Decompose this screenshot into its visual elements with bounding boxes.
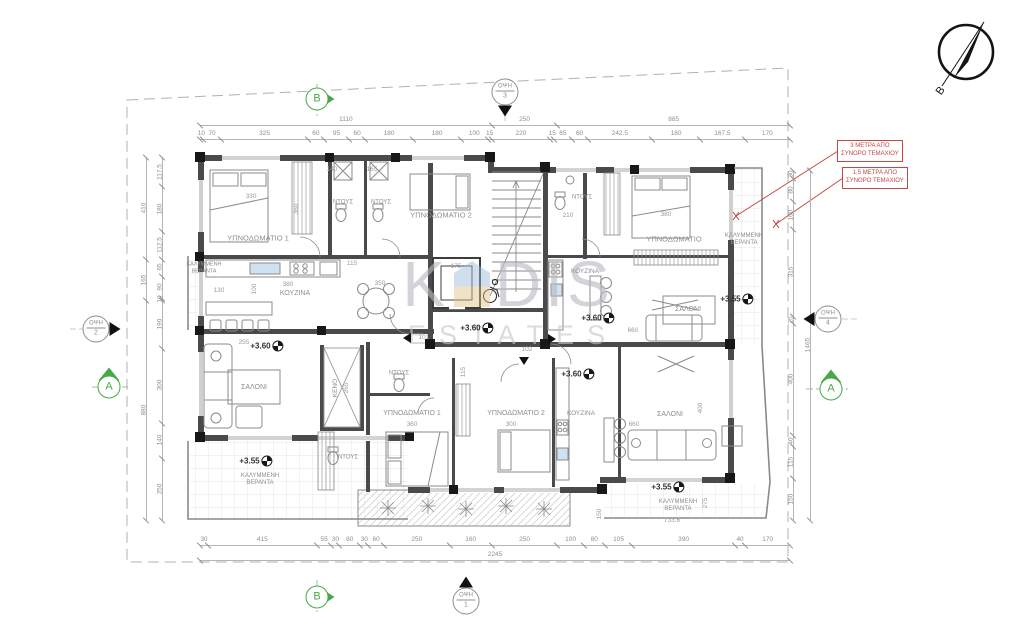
dimension-value: 117.5 [157,164,164,180]
dimension-value: 1465 [805,338,812,352]
dim-label: 130 [214,287,225,295]
red-note: 3 ΜΕΤΡΑ ΑΠΟΣΥΝΟΡΟ ΤΕΜΑΧΙΟΥ [837,140,903,162]
section-marker-letter: A [820,378,843,401]
dimension-value: 167.5 [714,130,730,137]
dimension-value: 250 [157,483,164,494]
elevation-symbol-icon [604,313,615,324]
dimension-value: 55 [321,536,328,543]
elevation-label: +3.60 [250,341,283,352]
dimension-value: 165 [141,274,148,285]
dim-label: 175 [451,263,462,271]
dim-label: 140 [327,166,338,174]
stairs [490,172,543,296]
dim-label: 330 [246,193,257,201]
void-shaft [324,348,360,427]
dimension-value: 180 [384,130,395,137]
dimension-value: 400 [788,374,795,385]
dim-label: 360 [407,421,418,429]
view-marker-arrow-icon [459,577,473,588]
dimension-baseline [200,560,790,561]
dimension-value: 220 [516,130,527,137]
compass-north-letter: B [934,84,948,97]
room-label: ΥΠΝΟΔΩΜΑΤΙΟ 2 [410,211,472,220]
dim-label: 101 [419,334,430,342]
view-marker: ΟΨΗ2 [83,316,110,343]
dimension-value: 80 [346,536,353,543]
view-marker-text [496,91,515,92]
red-note-line: 3 ΜΕΤΡΑ ΑΠΟ [841,143,899,151]
dimension-value: 95 [333,130,340,137]
dimension-value: 80 [788,186,795,193]
elevation-label: +3.60 [581,313,614,324]
dimension-value: 160 [465,536,476,543]
dimension-value: 325 [259,130,270,137]
dimension-line-right_inner: 30801003152540040115150 [787,170,799,520]
dim-label: 115 [460,367,468,377]
dim-label: 275 [702,498,710,509]
dimension-value: 250 [519,536,530,543]
section-marker-b: B [306,88,329,111]
dim-label: 150 [596,509,604,520]
view-marker-text: ΟΨΗ [816,311,841,317]
room-label: ΝΤΟΥΣ [333,199,353,206]
dim-label: 660 [629,421,640,429]
dimension-baseline [793,170,794,520]
elevation-value: +3.60 [581,314,601,323]
section-marker-letter: B [306,88,329,111]
red-note-line: ΣΥΝΟΡΟ ΤΕΜΑΧΙΟΥ [846,178,904,186]
elevation-value: +3.55 [720,295,740,304]
dimension-line-left_inner: 117.5180112.5659010190300140250 [156,157,168,520]
view-marker-text [87,328,106,329]
dimension-line-top_outer: 1110250885 [200,119,790,131]
dimension-value: 170 [762,536,773,543]
room-label: ΥΠΝΟΔΩΜΑΤΙΟ 1 [227,234,289,243]
red-note: 1,5 ΜΕΤΡΑ ΑΠΟΣΥΝΟΡΟ ΤΕΜΑΧΙΟΥ [842,167,908,189]
dimension-value: 100 [565,536,576,543]
room-label: ΚΕΝΟ [332,379,340,397]
dimension-value: 390 [678,536,689,543]
view-marker-text [819,318,838,319]
dimension-value: 80 [591,536,598,543]
dim-label: 350 [375,280,386,288]
elevation-label: +3.55 [239,456,272,467]
dimension-value: 65 [559,130,566,137]
elevation-symbol-icon [262,456,273,467]
dimension-value: 30 [361,536,368,543]
view-marker-text: ΟΨΗ [493,84,518,90]
compass-icon: B [934,22,993,97]
view-marker-text: 3 [493,93,518,100]
room-label: ΝΤΟΥΣ [572,194,592,201]
room-label: ΚΟΥΖΙΝΑ [567,410,595,418]
dimension-value: 250 [411,536,422,543]
dim-label: 102 [522,346,533,354]
dim-label: 265 [343,383,351,394]
dimension-baseline [200,545,790,546]
dimension-value: 70 [208,130,215,137]
view-marker-arrow-icon [804,312,815,326]
dimension-value: 100 [788,209,795,220]
elevation-value: +3.55 [651,483,671,492]
dimension-value: 1110 [339,116,353,123]
dimension-line-top_inner: 107032560956018018010015220156560242.518… [200,133,790,145]
room-label: ΣΑΛΟΝΙ [675,306,701,314]
dimension-value: 180 [432,130,443,137]
dimension-line-bottom_total: 2245 [200,554,790,566]
dimension-value: 180 [157,203,164,214]
entry-arrow-icon [519,357,529,365]
dimension-value: 180 [671,130,682,137]
elevation-symbol-icon [273,341,284,352]
dimension-value: 40 [788,437,795,444]
dimension-value: 140 [157,435,164,446]
dimension-value: 90 [157,283,164,290]
dimension-value: 25 [788,316,795,323]
room-label: ΥΠΝΟΔΩΜΑΤΙΟ 1 [383,410,440,418]
room-label: ΝΤΟΥΣ [338,454,358,461]
elevation-symbol-icon [743,294,754,305]
dimension-value: 60 [576,130,583,137]
room-label: ΚΑΛΥΜΜΕΝΗ ΒΕΡΑΝΤΑ [241,473,279,487]
view-marker-text: ΟΨΗ [454,593,479,599]
dimension-value: 60 [354,130,361,137]
wheelchair-icon [484,279,500,302]
elevation-value: +3.60 [561,370,581,379]
dimension-value: 315 [788,267,795,278]
dim-label: 660 [628,327,639,335]
elevation-symbol-icon [483,323,494,334]
floor-plan: B K DIS ESTATES ΥΠΝΟΔΩΜΑΤΙΟ 1ΝΤΟΥΣΝΤΟΥΣΥ… [0,0,1024,624]
room-label: ΚΑΛΥΜΜΕΝΗ ΒΕΡΑΝΤΑ [186,261,221,274]
dimension-value: 30 [200,536,207,543]
dim-label: 733.6 [664,517,680,525]
dimension-value: 300 [157,380,164,391]
section-marker-a: A [820,378,843,401]
dim-label: 400 [697,403,705,414]
dimension-value: 10 [157,296,164,303]
dimension-line-bottom: 3041555308030602501602501008010539040170 [200,539,790,551]
room-label: ΥΠΝΟΔΩΜΑΤΙΟ 2 [487,410,544,418]
dimension-value: 40 [736,536,743,543]
view-marker-text: 1 [454,602,479,609]
room-label: ΣΑΛΟΝΙ [657,411,683,419]
room-label: ΝΤΟΥΣ [389,370,409,377]
elevation-value: +3.55 [239,457,259,466]
dim-label: 210 [563,212,574,220]
room-label: ΥΠΝΟΔΩΜΑΤΙΟ [646,235,701,244]
dimension-value: 10 [198,130,205,137]
dimension-baseline [200,125,790,126]
dimension-value: 100 [469,130,480,137]
dimension-value: 105 [613,536,624,543]
red-note-line: ΣΥΝΟΡΟ ΤΕΜΑΧΙΟΥ [841,151,899,159]
elevation-symbol-icon [674,482,685,493]
entry-arrow-icon [403,333,411,343]
dim-label: 100 [251,284,259,295]
view-marker-arrow-icon [110,322,121,336]
view-marker: ΟΨΗ1 [453,588,480,615]
room-label: ΝΤΟΥΣ [371,199,391,206]
section-marker-letter: B [306,586,329,609]
dim-label: 380 [283,281,294,289]
dimension-value: 112.5 [157,237,164,253]
dim-label: 115 [347,260,357,268]
dimension-value: 30 [332,536,339,543]
elevation-label: +3.60 [561,369,594,380]
elevation-value: +3.60 [460,324,480,333]
dimension-value: 30 [788,171,795,178]
dimension-value: 410 [141,203,148,214]
room-label: ΚΟΥΖΙΝΑ [571,268,599,276]
elevation-label: +3.60 [460,323,493,334]
section-marker-a: A [98,376,121,399]
room-label: ΣΑΛΟΝΙ [241,384,267,392]
view-marker-text [457,600,476,601]
dimension-value: 190 [157,319,164,330]
dimension-value: 65 [157,264,164,271]
dimension-value: 880 [141,405,148,416]
dimension-value: 15 [549,130,556,137]
view-marker: ΟΨΗ4 [815,306,842,333]
view-marker: ΟΨΗ3 [492,79,519,106]
elevation-value: +3.60 [250,342,270,351]
dimension-value: 250 [519,116,530,123]
elevation-label: +3.55 [651,482,684,493]
section-marker-b: B [306,586,329,609]
dimension-value: 115 [788,457,795,467]
room-label: ΚΑΛΥΜΜΕΝΗ ΒΕΡΑΝΤΑ [659,499,697,513]
dimension-value: 170 [762,130,773,137]
red-note-line: 1,5 ΜΕΤΡΑ ΑΠΟ [846,170,904,178]
dimension-value: 242.5 [612,130,628,137]
view-marker-text: ΟΨΗ [84,321,109,327]
dim-label: 360 [293,204,301,215]
dimension-value: 2245 [488,551,502,558]
view-marker-text: 2 [84,330,109,337]
room-label: ΚΟΥΖΙΝΑ [280,290,310,298]
dimension-value: 15 [486,130,493,137]
dim-label: 255 [239,339,250,347]
view-marker-arrow-icon [498,106,512,117]
dimension-value: 415 [257,536,268,543]
dimension-value: 60 [312,130,319,137]
planting-strip [358,490,570,526]
dimension-line-left_outer: 410165880 [140,157,152,520]
dimension-line-right_outer: 1465 [804,170,816,520]
view-marker-text: 4 [816,320,841,327]
room-label: ΚΑΛΥΜΜΕΝΗ ΒΕΡΑΝΤΑ [725,233,763,247]
entry-arrow-icon [548,334,556,344]
dimension-value: 150 [788,494,795,505]
elevation-symbol-icon [584,369,595,380]
dimension-value: 60 [372,536,379,543]
dim-label: 300 [506,421,517,429]
elevation-label: +3.55 [720,294,753,305]
dim-label: 380 [661,211,672,219]
dim-label: 165 [367,166,378,174]
section-marker-letter: A [98,376,121,399]
dimension-value: 885 [668,116,679,123]
